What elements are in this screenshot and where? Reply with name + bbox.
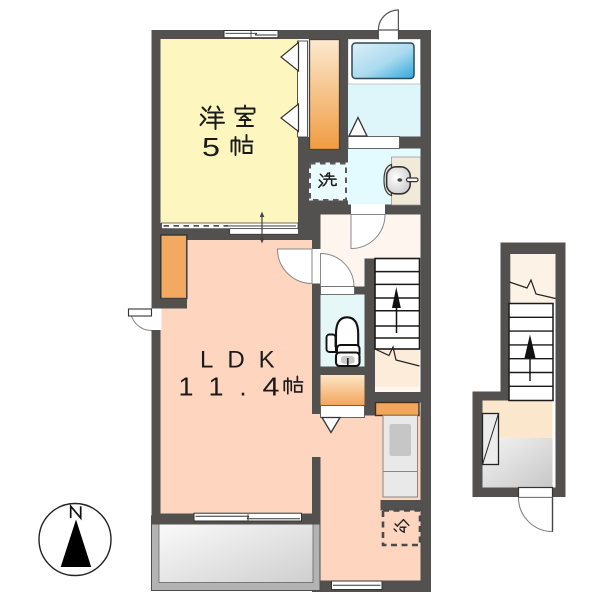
svg-text:LDK: LDK: [200, 347, 289, 374]
svg-text:5: 5: [202, 132, 220, 162]
svg-text:1: 1: [179, 372, 194, 402]
svg-text:4: 4: [263, 372, 280, 402]
svg-text:.: .: [239, 372, 246, 402]
svg-text:1: 1: [209, 372, 224, 402]
